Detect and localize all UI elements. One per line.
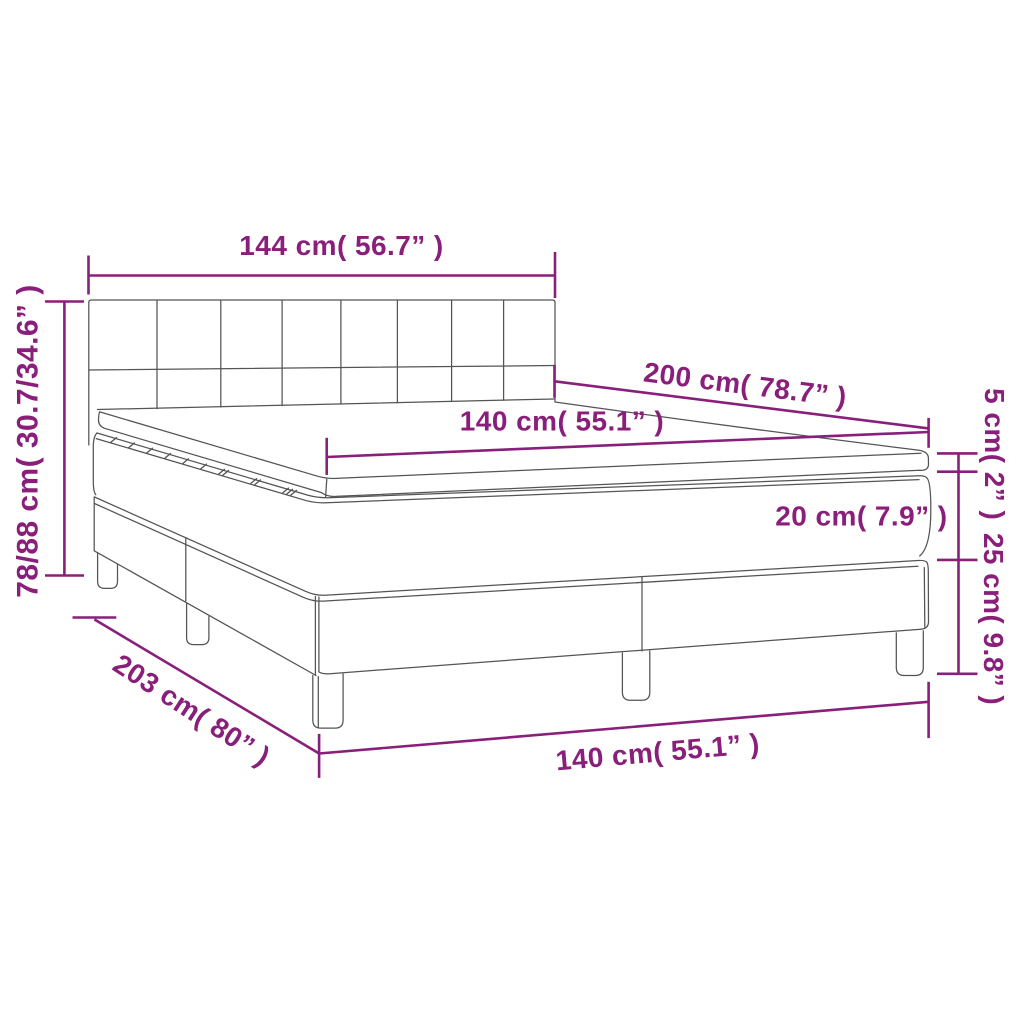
svg-text:78/88 cm( 30.7/34.6” ): 78/88 cm( 30.7/34.6” ) — [12, 284, 45, 597]
svg-text:5 cm( 2” ): 5 cm( 2” ) — [979, 388, 1010, 520]
svg-text:140 cm( 55.1” ): 140 cm( 55.1” ) — [554, 728, 760, 777]
svg-text:140 cm( 55.1” ): 140 cm( 55.1” ) — [460, 406, 664, 437]
svg-text:144 cm( 56.7” ): 144 cm( 56.7” ) — [239, 230, 443, 261]
svg-text:25 cm( 9.8” ): 25 cm( 9.8” ) — [978, 533, 1009, 705]
svg-text:203 cm( 80” ): 203 cm( 80” ) — [108, 648, 276, 772]
svg-text:20 cm( 7.9” ): 20 cm( 7.9” ) — [775, 500, 947, 531]
